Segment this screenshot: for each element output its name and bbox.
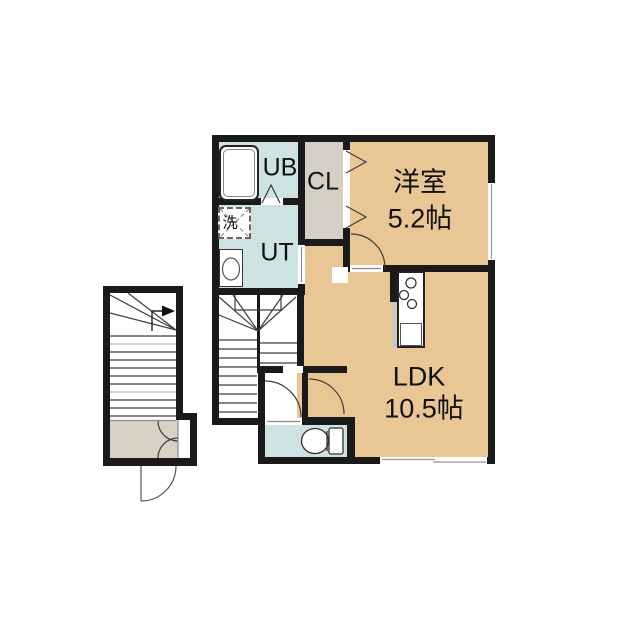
counter-edge [392, 302, 397, 350]
western-door-threshold [350, 265, 383, 272]
stair-center-wall [257, 295, 260, 373]
wall [343, 135, 350, 150]
wall [298, 135, 305, 245]
kitchen-sink-icon [400, 323, 422, 346]
ub-door-opening [261, 198, 283, 205]
toilet-door-opening [265, 418, 302, 425]
wall [212, 135, 219, 425]
wall [103, 286, 183, 293]
window-south [380, 457, 487, 464]
wall [258, 366, 283, 373]
wall [176, 293, 183, 413]
closet-bifold-opening [343, 150, 350, 228]
wall [258, 366, 265, 458]
wall [390, 271, 397, 302]
label-western-room: 洋室 [393, 170, 447, 197]
entrance-door-icon [141, 466, 176, 501]
vanity-icon [219, 249, 243, 287]
label-western-size: 5.2帖 [388, 206, 453, 233]
floorplan-canvas: UB CL UT 洗 洋室 5.2帖 LDK 10.5帖 [0, 0, 640, 640]
wall [343, 228, 350, 272]
wall [176, 413, 197, 420]
wall [103, 458, 197, 466]
label-ut: UT [260, 241, 293, 266]
label-washer: 洗 [222, 216, 237, 231]
entry-notch [178, 420, 190, 458]
wall [303, 366, 347, 373]
wall [297, 295, 304, 368]
label-ldk: LDK [393, 364, 446, 391]
label-cl: CL [307, 170, 339, 195]
window-east [488, 183, 495, 260]
bathtub-icon [219, 145, 259, 201]
wall [212, 135, 495, 142]
bathtub-inner-line [223, 149, 255, 197]
wall [103, 286, 110, 466]
label-ldk-size: 10.5帖 [384, 396, 464, 423]
label-ub: UB [263, 156, 298, 181]
wall [302, 373, 308, 418]
entry-landing [110, 420, 178, 458]
wall [347, 417, 355, 464]
wall [212, 288, 305, 295]
hall-threshold [332, 267, 348, 283]
room-toilet [265, 425, 347, 457]
ut-door-opening [298, 245, 305, 284]
hall-opening [297, 366, 303, 373]
